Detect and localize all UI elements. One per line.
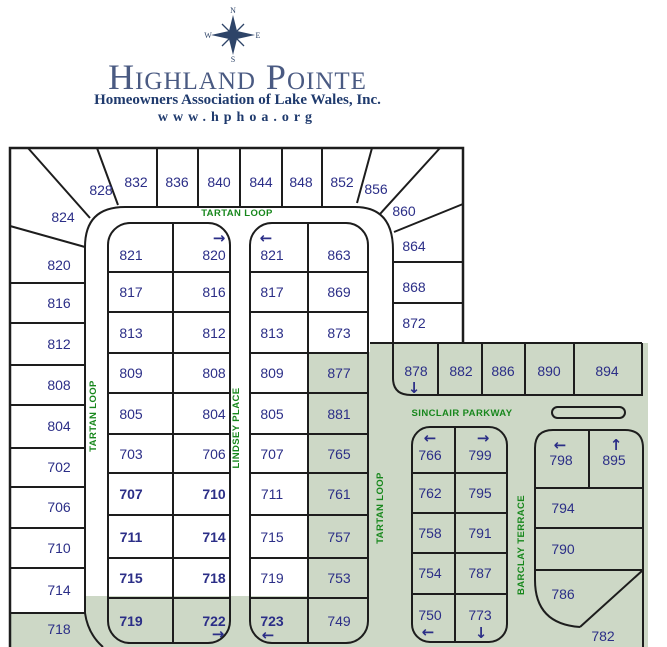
- plat-map-page: N E S W Highland Pointe Homeowners Assoc…: [0, 0, 667, 647]
- flow-arrow-left-750: ←: [422, 623, 435, 641]
- lot-a-809-label: 809: [119, 365, 143, 381]
- lot-878-label: 878: [404, 363, 428, 379]
- lot-836-label: 836: [165, 174, 189, 190]
- street-label-sinclair-parkway: SINCLAIR PARKWAY: [412, 408, 513, 419]
- lot-702-label: 702: [47, 459, 71, 475]
- lot-754-label: 754: [418, 565, 442, 581]
- flow-arrow-down-773: ↓: [475, 624, 488, 642]
- lot-895-label: 895: [602, 452, 626, 468]
- lot-718w-label: 718: [47, 621, 71, 637]
- lot-a-719-label: 719: [119, 613, 143, 629]
- lot-a-715-label: 715: [119, 570, 143, 586]
- lot-782-label: 782: [591, 628, 615, 644]
- street-label-barclay-terrace: BARCLAY TERRACE: [516, 495, 527, 595]
- lot-a-714-label: 714: [202, 529, 226, 545]
- lot-b-761-label: 761: [327, 486, 351, 502]
- lot-808w-label: 808: [47, 377, 71, 393]
- lot-816w-label: 816: [47, 295, 71, 311]
- lot-b-753-label: 753: [327, 570, 351, 586]
- lot-b-711-label: 711: [261, 486, 284, 502]
- lot-a-808-label: 808: [202, 365, 226, 381]
- flow-arrow-down-878: ↓: [408, 379, 421, 397]
- lot-852-label: 852: [330, 174, 354, 190]
- lot-812w-label: 812: [47, 336, 71, 352]
- lot-b-723-label: 723: [260, 613, 284, 629]
- lot-828-label: 828: [89, 182, 113, 198]
- flow-arrow-right-799: →: [477, 429, 490, 447]
- lot-a-706-label: 706: [202, 446, 226, 462]
- lot-a-718-label: 718: [202, 570, 226, 586]
- lot-b-715-label: 715: [260, 529, 284, 545]
- lot-a-710-label: 710: [202, 486, 226, 502]
- street-label-tartan-loop-top: TARTAN LOOP: [201, 208, 273, 219]
- lot-840-label: 840: [207, 174, 231, 190]
- lot-b-805-label: 805: [260, 406, 284, 422]
- flow-arrow-left-766: ←: [424, 429, 437, 447]
- lot-b-765-label: 765: [327, 446, 351, 462]
- lot-790-label: 790: [551, 541, 575, 557]
- lot-787-label: 787: [468, 565, 492, 581]
- lot-890-label: 890: [537, 363, 561, 379]
- subdivision-map: TARTAN LOOP TARTAN LOOP LINDSEY PLACE TA…: [0, 0, 667, 647]
- lot-a-817-label: 817: [119, 284, 143, 300]
- lot-a-816-label: 816: [202, 284, 226, 300]
- lot-b-869-label: 869: [327, 284, 351, 300]
- lot-791-label: 791: [468, 525, 492, 541]
- lot-b-863-label: 863: [327, 247, 351, 263]
- lot-b-809-label: 809: [260, 365, 284, 381]
- lot-b-821-label: 821: [260, 247, 284, 263]
- lot-868-label: 868: [402, 279, 426, 295]
- lot-a-805-label: 805: [119, 406, 143, 422]
- lot-844-label: 844: [249, 174, 273, 190]
- street-label-lindsey-place: LINDSEY PLACE: [231, 387, 242, 468]
- lot-786-label: 786: [551, 586, 575, 602]
- lot-798-label: 798: [549, 452, 573, 468]
- lot-886-label: 886: [491, 363, 515, 379]
- lot-848-label: 848: [289, 174, 313, 190]
- lot-b-813-label: 813: [260, 325, 284, 341]
- lot-820w-label: 820: [47, 257, 71, 273]
- lot-b-707-label: 707: [260, 446, 284, 462]
- lot-824-label: 824: [51, 209, 75, 225]
- lot-894-label: 894: [595, 363, 619, 379]
- street-label-tartan-loop-east: TARTAN LOOP: [375, 472, 386, 544]
- lot-762-label: 762: [418, 485, 442, 501]
- lot-a-812-label: 812: [202, 325, 226, 341]
- lot-758-label: 758: [418, 525, 442, 541]
- lot-b-719-label: 719: [260, 570, 284, 586]
- lot-706w-label: 706: [47, 499, 71, 515]
- flow-arrow-left-821: ←: [260, 229, 273, 247]
- lot-a-804-label: 804: [202, 406, 226, 422]
- lot-a-722-label: 722: [202, 613, 226, 629]
- lot-b-873-label: 873: [327, 325, 351, 341]
- lot-794-label: 794: [551, 500, 575, 516]
- lot-882-label: 882: [449, 363, 473, 379]
- lot-a-703-label: 703: [119, 446, 143, 462]
- lot-799-label: 799: [468, 447, 492, 463]
- lot-750-label: 750: [418, 607, 442, 623]
- lot-b-817-label: 817: [260, 284, 284, 300]
- lot-a-820-label: 820: [202, 247, 226, 263]
- lot-860-label: 860: [392, 203, 416, 219]
- lot-b-881-label: 881: [327, 406, 351, 422]
- lot-795-label: 795: [468, 485, 492, 501]
- lot-a-813-label: 813: [119, 325, 143, 341]
- street-label-tartan-loop-west: TARTAN LOOP: [88, 380, 99, 452]
- lot-864-label: 864: [402, 238, 426, 254]
- lot-b-877-label: 877: [327, 365, 351, 381]
- lot-a-711-label: 711: [120, 529, 143, 545]
- lot-856-label: 856: [364, 181, 388, 197]
- lot-766-label: 766: [418, 447, 442, 463]
- lot-710w-label: 710: [47, 540, 71, 556]
- flow-arrow-right-820: →: [213, 229, 226, 247]
- lot-832-label: 832: [124, 174, 148, 190]
- lot-a-707-label: 707: [119, 486, 143, 502]
- lot-714w-label: 714: [47, 582, 71, 598]
- lot-a-821-label: 821: [119, 247, 143, 263]
- lot-773-label: 773: [468, 607, 492, 623]
- lot-804w-label: 804: [47, 418, 71, 434]
- lot-872-label: 872: [402, 315, 426, 331]
- lot-b-749-label: 749: [327, 613, 351, 629]
- lot-b-757-label: 757: [327, 529, 351, 545]
